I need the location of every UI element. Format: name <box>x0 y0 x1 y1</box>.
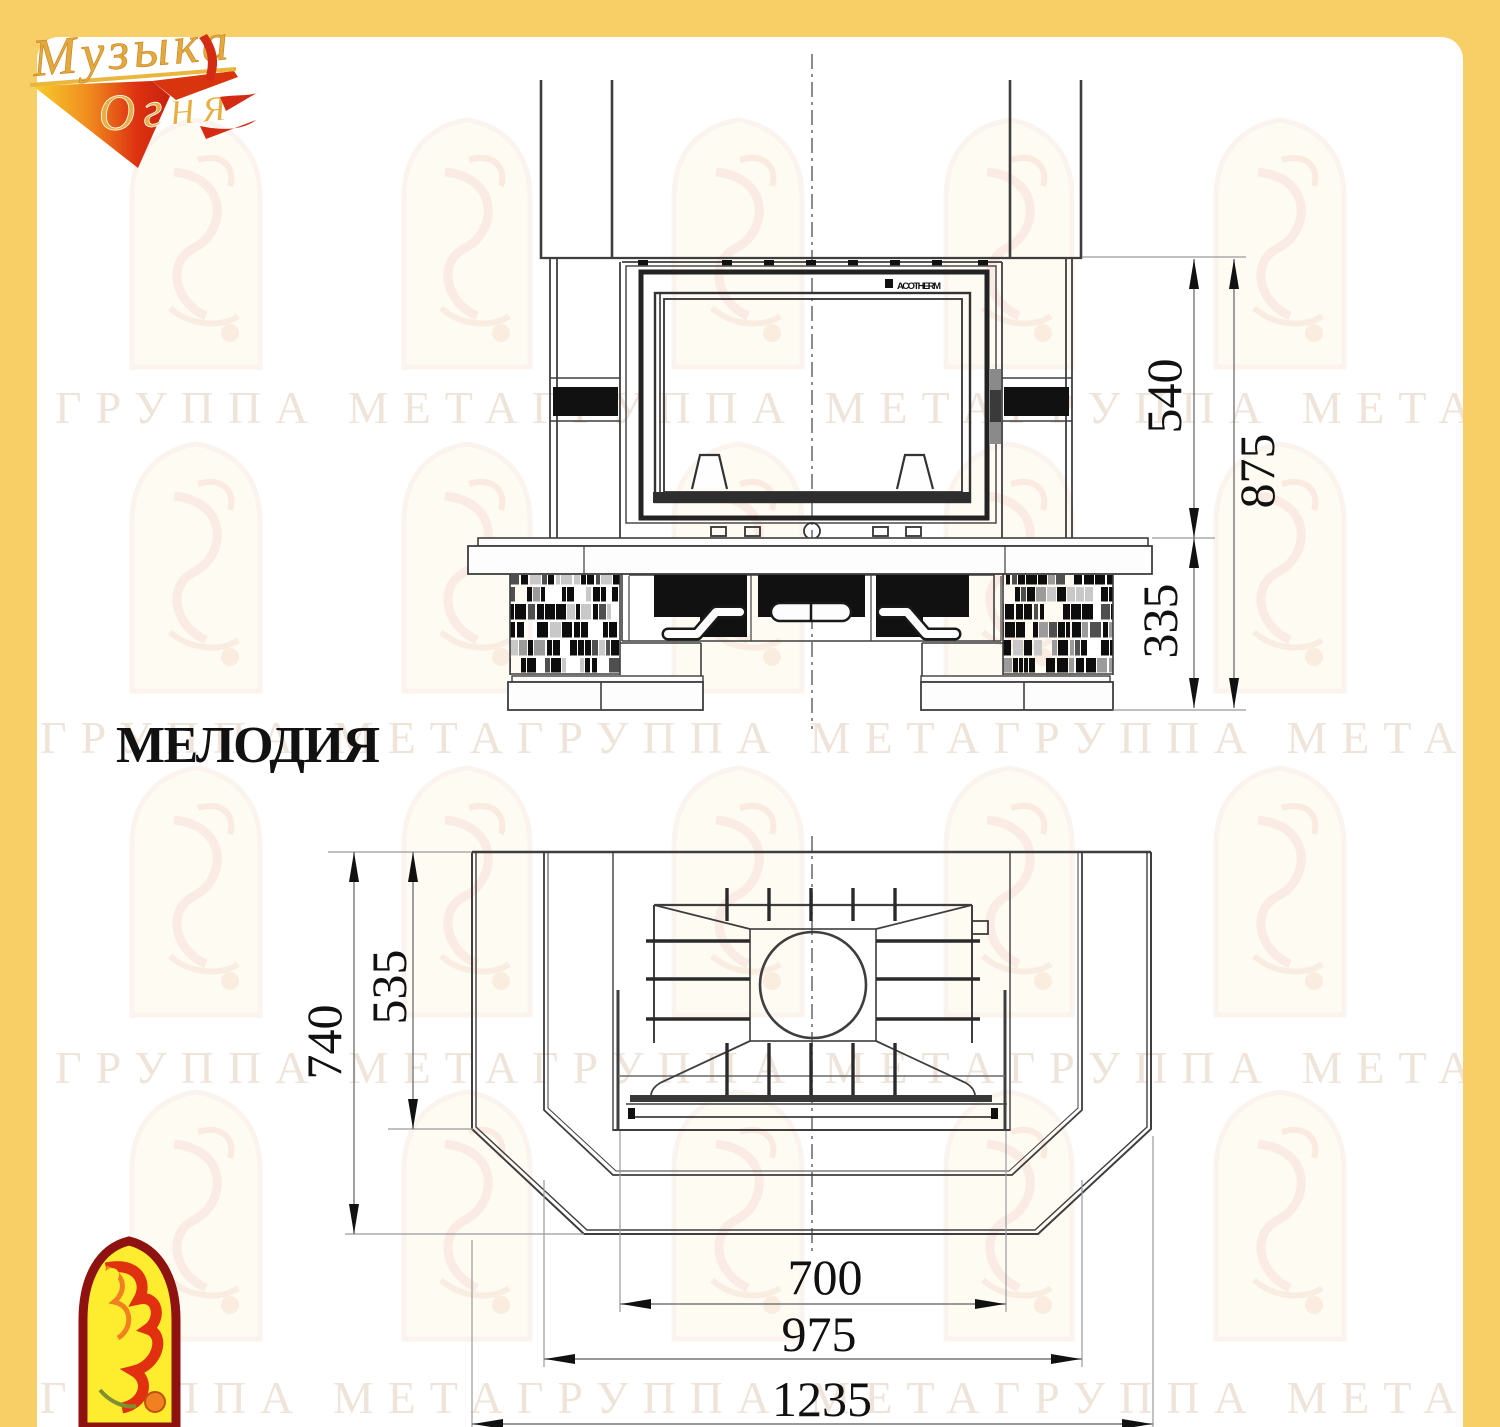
svg-text:535: 535 <box>361 950 417 1025</box>
svg-text:335: 335 <box>1132 584 1188 659</box>
svg-text:540: 540 <box>1136 359 1192 434</box>
svg-text:1235: 1235 <box>772 1371 872 1427</box>
svg-text:ACOTHERM: ACOTHERM <box>897 281 941 292</box>
svg-text:МЕЛОДИЯ: МЕЛОДИЯ <box>116 717 380 774</box>
svg-text:875: 875 <box>1229 434 1285 509</box>
svg-text:975: 975 <box>782 1306 857 1362</box>
svg-text:740: 740 <box>296 1005 352 1080</box>
svg-text:ГРУППА МЕТАГРУППА МЕТАГРУППА М: ГРУППА МЕТАГРУППА МЕТАГРУППА МЕТА <box>55 382 1485 433</box>
svg-text:700: 700 <box>788 1249 863 1305</box>
svg-text:ГРУППА МЕТАГРУППА МЕТАГРУППА М: ГРУППА МЕТАГРУППА МЕТАГРУППА МЕТА <box>40 1372 1470 1423</box>
